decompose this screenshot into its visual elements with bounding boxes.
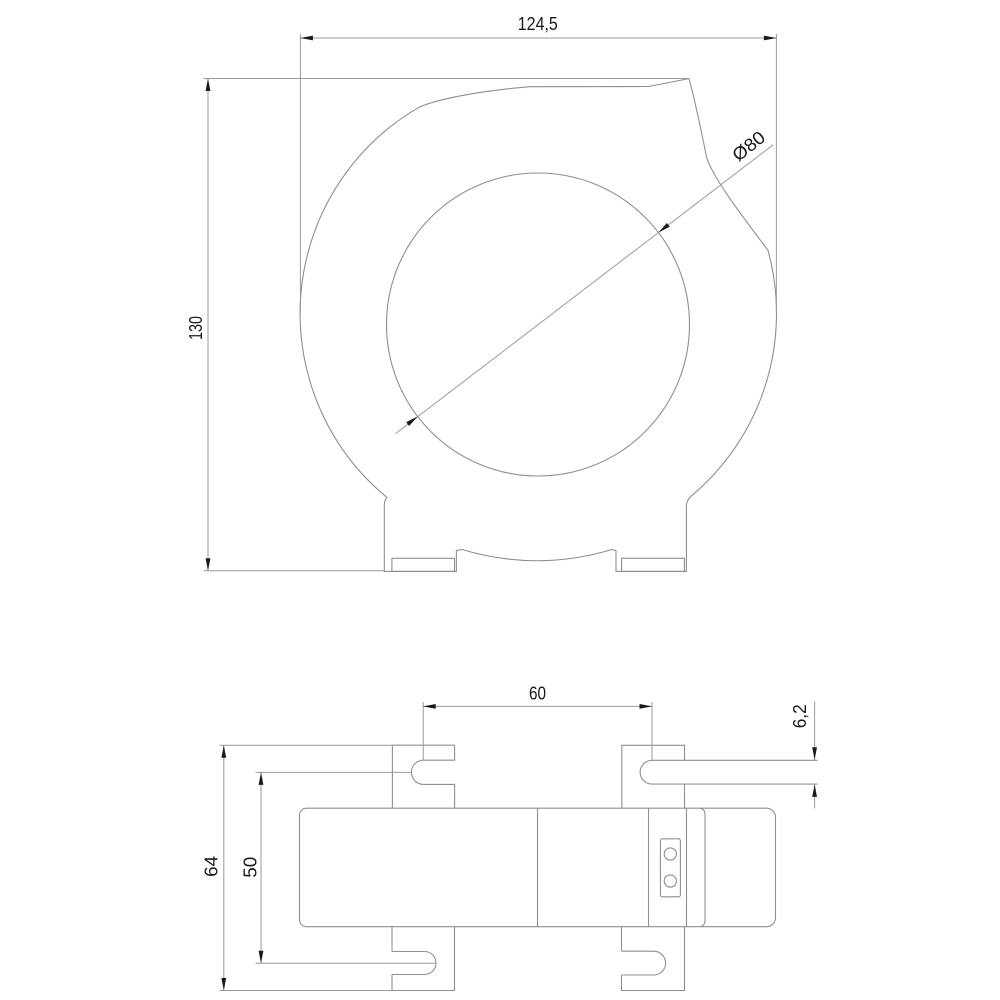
svg-text:6,2: 6,2 xyxy=(790,704,810,728)
svg-text:130: 130 xyxy=(186,316,206,340)
svg-text:50: 50 xyxy=(241,857,261,878)
svg-text:Ø80: Ø80 xyxy=(728,127,769,165)
svg-text:64: 64 xyxy=(202,856,222,877)
svg-text:124,5: 124,5 xyxy=(518,14,558,34)
svg-text:60: 60 xyxy=(529,684,546,704)
